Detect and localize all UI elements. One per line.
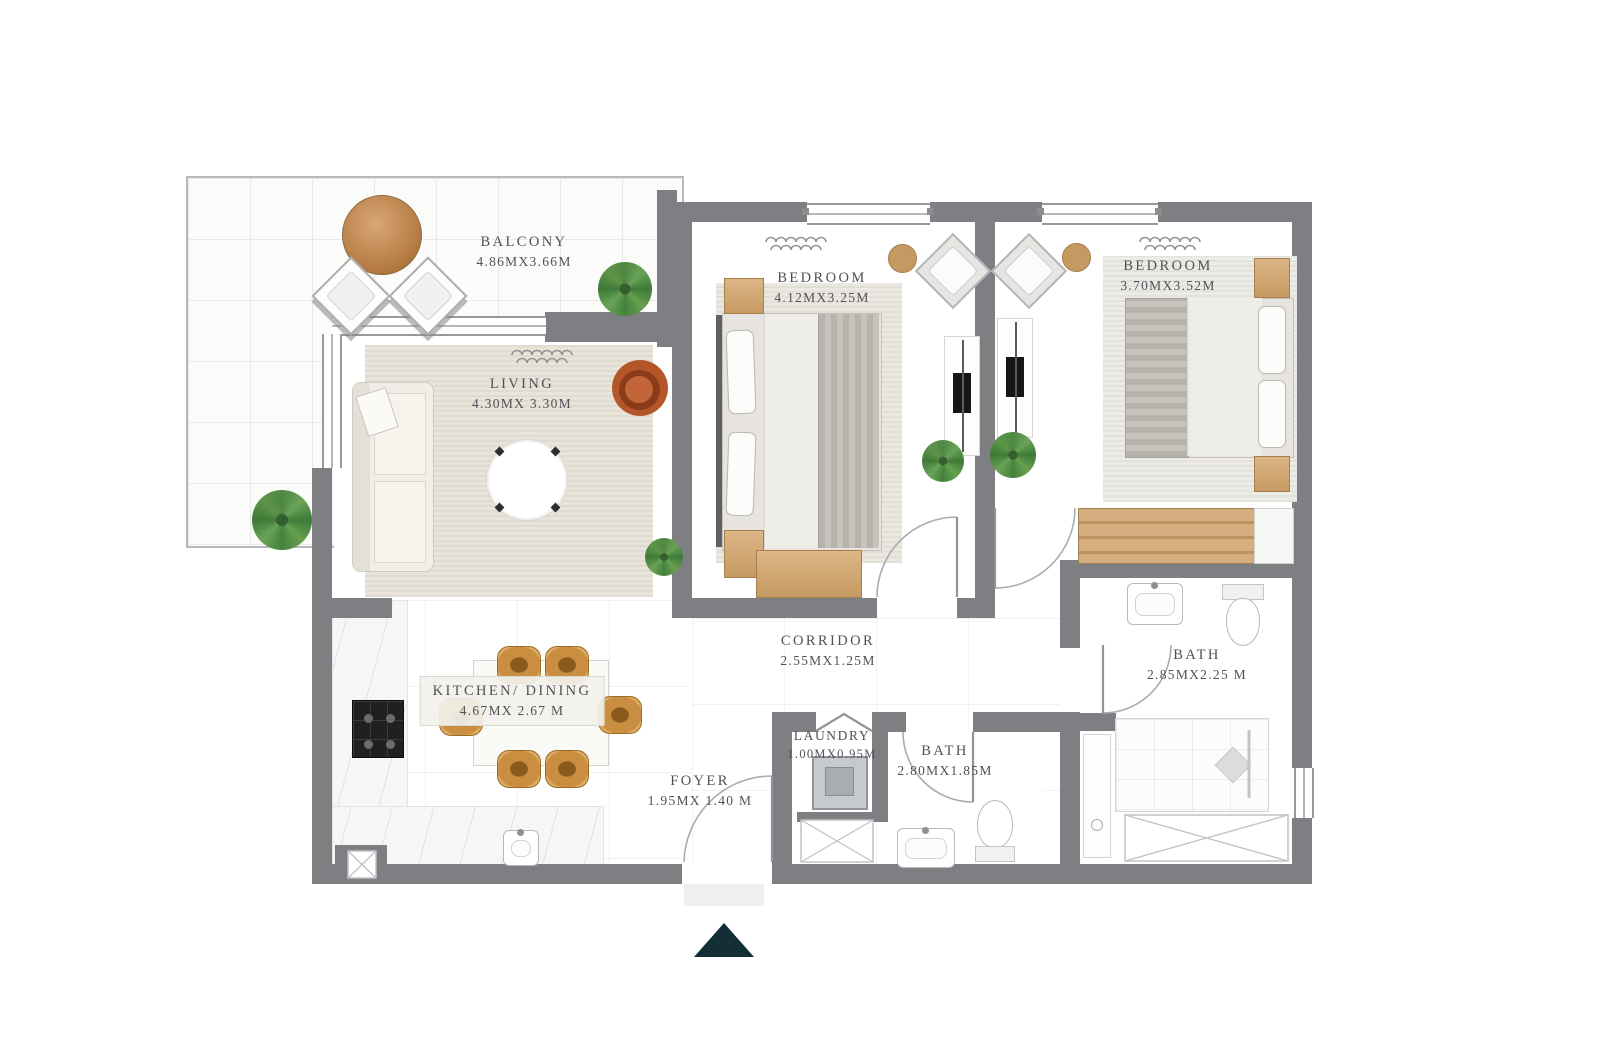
room-dims: 4.67MX 2.67 M: [460, 701, 565, 720]
room-label-living: LIVING 4.30MX 3.30M: [472, 375, 572, 413]
door-arc: [684, 508, 1171, 862]
plan-symbols-layer: [0, 0, 1600, 1047]
room-label-balcony: BALCONY 4.86MX3.66M: [476, 233, 571, 271]
room-label-bedroom1: BEDROOM 4.12MX3.25M: [774, 269, 869, 307]
room-dims: 4.30MX 3.30M: [472, 394, 572, 413]
room-name: CORRIDOR: [781, 632, 875, 651]
room-name: BATH: [921, 742, 968, 761]
room-name: FOYER: [670, 772, 730, 791]
room-label-bath2: BATH 2.85MX2.25 M: [1147, 646, 1247, 684]
room-name: BEDROOM: [777, 269, 866, 288]
closet-x-box: [348, 815, 1288, 878]
room-label-kitchen-dining: KITCHEN/ DINING 4.67MX 2.67 M: [420, 676, 605, 726]
floor-plan: BALCONY 4.86MX3.66M LIVING 4.30MX 3.30M …: [0, 0, 1600, 1047]
room-name: BALCONY: [481, 233, 568, 252]
room-dims: 2.55MX1.25M: [780, 651, 875, 670]
room-dims: 1.95MX 1.40 M: [648, 791, 753, 810]
room-name: LIVING: [490, 375, 554, 394]
room-dims: 1.00MX0.95M: [787, 745, 876, 764]
room-label-foyer: FOYER 1.95MX 1.40 M: [648, 772, 753, 810]
room-label-bath1: BATH 2.80MX1.85M: [897, 742, 992, 780]
room-dims: 4.86MX3.66M: [476, 252, 571, 271]
room-label-corridor: CORRIDOR 2.55MX1.25M: [780, 632, 875, 670]
door-leaf: [772, 508, 1103, 862]
room-name: LAUNDRY: [794, 726, 870, 745]
room-label-bedroom2: BEDROOM 3.70MX3.52M: [1120, 257, 1215, 295]
room-dims: 3.70MX3.52M: [1120, 276, 1215, 295]
room-dims: 2.85MX2.25 M: [1147, 665, 1247, 684]
room-dims: 4.12MX3.25M: [774, 288, 869, 307]
room-name: KITCHEN/ DINING: [433, 682, 592, 701]
room-name: BATH: [1173, 646, 1220, 665]
room-name: BEDROOM: [1123, 257, 1212, 276]
room-dims: 2.80MX1.85M: [897, 761, 992, 780]
room-label-laundry: LAUNDRY 1.00MX0.95M: [787, 726, 876, 764]
